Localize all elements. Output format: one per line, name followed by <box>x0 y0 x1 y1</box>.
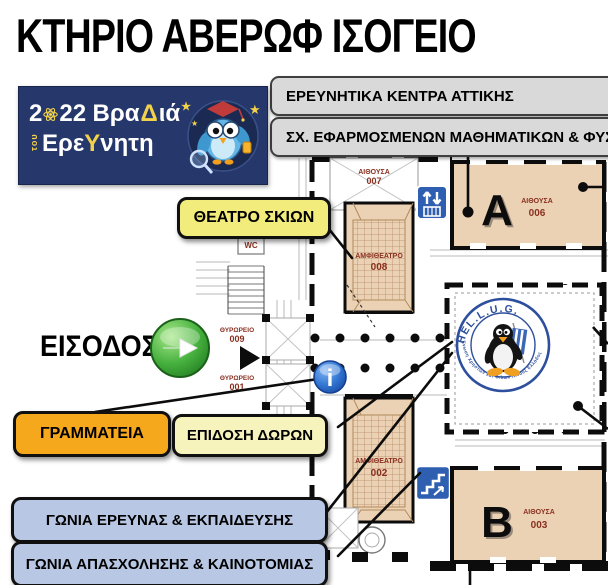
porter-009: ΘΥΡΩΡΕΙΟ 009 <box>220 327 254 344</box>
floor-plan-page: ΑΙΘΟΥΣΑ 007 ΑΜΦΙΘΕΑΤΡΟ 008 <box>0 0 608 585</box>
callout-research-corner-label: ΓΩΝΙΑ ΕΡΕΥΝΑΣ & ΕΚΠΑΙΔΕΥΣΗΣ <box>46 512 293 529</box>
info-icon: i <box>314 361 346 393</box>
elevator-icon <box>417 186 447 219</box>
callout-research-corner: ΓΩΝΙΑ ΕΡΕΥΝΑΣ & ΕΚΠΑΙΔΕΥΣΗΣ <box>11 497 328 543</box>
info-glyph: i <box>327 365 334 392</box>
amph-002-number: 002 <box>371 468 388 479</box>
room-b-letter: B <box>481 498 513 547</box>
staircase-west <box>228 266 264 314</box>
atom-icon <box>43 106 58 123</box>
banner-word2-a: Ερε <box>42 131 84 157</box>
banner-word1-a: Βρα <box>93 101 140 127</box>
owl-mascot-icon: ★ ★ <box>183 96 263 176</box>
banner-word2-b: νητη <box>100 131 153 157</box>
microscope-delta-icon: Δ <box>140 101 157 127</box>
banner-wordmark: 222ΒραΔιά★ τουΕρεΥνητη <box>29 101 191 158</box>
callout-school: ΣΧ. ΕΦΑΡΜΟΣΜΕΝΩΝ ΜΑΘΗΜΑΤΙΚΩΝ & ΦΥΣΙ <box>270 117 608 157</box>
porter-001-label: ΘΥΡΩΡΕΙΟ <box>220 375 254 382</box>
amphitheater-008: ΑΜΦΙΘΕΑΤΡΟ 008 <box>345 203 413 327</box>
room-a-letter: A <box>481 186 513 235</box>
room-a-number: 006 <box>529 208 546 219</box>
banner-year-a: 2 <box>29 101 42 127</box>
room-007-number: 007 <box>366 176 381 186</box>
callout-gift-delivery: ΕΠΙΔΟΣΗ ΔΩΡΩΝ <box>172 414 328 457</box>
amph-002-label: ΑΜΦΙΘΕΑΤΡΟ <box>355 458 403 465</box>
amph-008-number: 008 <box>371 262 388 273</box>
svg-text:★: ★ <box>191 119 198 128</box>
callout-secretariat-label: ΓΡΑΜΜΑΤΕΙΑ <box>40 425 144 443</box>
vestibule-rooms <box>262 314 314 410</box>
callout-research-centers: ΕΡΕΥΝΗΤΙΚΑ ΚΕΝΤΡΑ ΑΤΤΙΚΗΣ <box>270 76 608 116</box>
svg-text:★: ★ <box>249 102 261 117</box>
room-b-label: ΑΙΘΟΥΣΑ <box>523 509 555 516</box>
figure-upsilon-icon: Υ <box>84 131 100 157</box>
researchers-night-banner: 222ΒραΔιά★ τουΕρεΥνητη ★ ★ <box>18 86 268 185</box>
callout-gift-delivery-label: ΕΠΙΔΟΣΗ ΔΩΡΩΝ <box>187 427 313 444</box>
banner-word1-b: ιά <box>159 101 180 127</box>
room-007-label: ΑΙΘΟΥΣΑ <box>358 169 390 176</box>
stairs-icon <box>416 466 450 500</box>
hellug-room: HEL.L.U.G. Ένωση Χρηστών και Φίλων Λίνου… <box>447 285 608 432</box>
room-a: A A ΑΙΘΟΥΣΑ 006 <box>452 152 604 249</box>
callout-research-centers-label: ΕΡΕΥΝΗΤΙΚΑ ΚΕΝΤΡΑ ΑΤΤΙΚΗΣ <box>286 88 514 105</box>
room-a-label: ΑΙΘΟΥΣΑ <box>521 198 553 205</box>
callout-secretariat: ΓΡΑΜΜΑΤΕΙΑ <box>13 411 171 457</box>
porter-009-label: ΘΥΡΩΡΕΙΟ <box>220 327 254 334</box>
callout-shadow-theater-label: ΘΕΑΤΡΟ ΣΚΙΩΝ <box>194 209 315 227</box>
callout-school-label: ΣΧ. ΕΦΑΡΜΟΣΜΕΝΩΝ ΜΑΘΗΜΑΤΙΚΩΝ & ΦΥΣΙ <box>286 129 608 146</box>
room-b-number: 003 <box>531 520 548 531</box>
wc-label: WC <box>244 241 258 250</box>
entrance-label: ΕΙΣΟΔΟΣ <box>40 330 158 364</box>
hellug-logo: HEL.L.U.G. Ένωση Χρηστών και Φίλων Λίνου… <box>455 299 549 391</box>
callout-employment-corner-label: ΓΩΝΙΑ ΑΠΑΣΧΟΛΗΣΗΣ & ΚΑΙΝΟΤΟΜΙΑΣ <box>26 556 313 573</box>
porter-009-number: 009 <box>229 334 244 344</box>
callout-employment-corner: ΓΩΝΙΑ ΑΠΑΣΧΟΛΗΣΗΣ & ΚΑΙΝΟΤΟΜΙΑΣ <box>11 541 328 585</box>
callout-shadow-theater: ΘΕΑΤΡΟ ΣΚΙΩΝ <box>177 197 331 239</box>
entrance-triangle-icon <box>240 346 260 370</box>
banner-tou: του <box>30 139 40 151</box>
banner-year-b: 22 <box>59 101 86 127</box>
entrance-arrow-icon <box>149 317 211 379</box>
amph-008-label: ΑΜΦΙΘΕΑΤΡΟ <box>355 253 403 260</box>
